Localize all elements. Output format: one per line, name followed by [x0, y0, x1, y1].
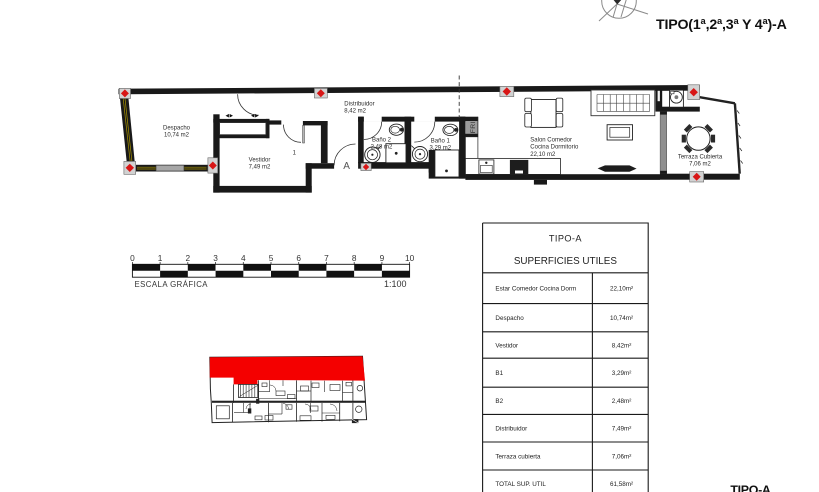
svg-text:Terraza cubierta: Terraza cubierta: [495, 453, 541, 460]
svg-text:TIPO-A: TIPO-A: [730, 483, 771, 492]
svg-text:Vestidor: Vestidor: [249, 157, 271, 163]
svg-text:0: 0: [130, 253, 135, 263]
svg-text:Cocina Dormitorio: Cocina Dormitorio: [530, 145, 579, 151]
svg-text:TIPO(1ª,2ª,3ª Y 4ª)-A: TIPO(1ª,2ª,3ª Y 4ª)-A: [656, 17, 787, 33]
svg-text:B2: B2: [495, 398, 503, 405]
svg-text:2: 2: [185, 253, 190, 263]
svg-text:SUPERFICIES UTILES: SUPERFICIES UTILES: [514, 256, 618, 267]
svg-text:ESCALA GRÁFICA: ESCALA GRÁFICA: [135, 280, 209, 289]
svg-text:7,06m²: 7,06m²: [612, 453, 632, 460]
svg-text:Distribuidor: Distribuidor: [495, 426, 527, 433]
svg-text:Despacho: Despacho: [163, 126, 191, 132]
svg-text:4: 4: [241, 253, 246, 263]
svg-text:Salon Comedor: Salon Comedor: [530, 138, 572, 144]
svg-text:7: 7: [324, 253, 329, 263]
svg-text:5: 5: [269, 253, 274, 263]
svg-text:22,10m²: 22,10m²: [610, 286, 633, 293]
svg-text:Baño 1: Baño 1: [431, 139, 451, 145]
svg-text:Terraza Cubierta: Terraza Cubierta: [678, 154, 723, 160]
svg-text:TOTAL SUP. UTIL: TOTAL SUP. UTIL: [495, 481, 546, 488]
svg-text:8,42m²: 8,42m²: [612, 342, 632, 349]
svg-text:2,48 m2: 2,48 m2: [371, 144, 393, 150]
svg-text:7,49 m2: 7,49 m2: [249, 164, 271, 170]
svg-text:3: 3: [213, 253, 218, 263]
svg-text:8,42 m2: 8,42 m2: [344, 109, 366, 115]
svg-text:3,29m²: 3,29m²: [612, 370, 632, 377]
svg-text:22,10 m2: 22,10 m2: [530, 152, 556, 158]
svg-text:3,29 m2: 3,29 m2: [429, 145, 451, 151]
svg-text:8: 8: [352, 253, 357, 263]
svg-text:Distribuidor: Distribuidor: [344, 102, 374, 108]
svg-text:Baño 2: Baño 2: [372, 137, 392, 143]
svg-text:2,48m²: 2,48m²: [612, 398, 632, 405]
svg-text:1: 1: [158, 253, 163, 263]
svg-text:10: 10: [405, 253, 415, 263]
svg-text:A: A: [343, 161, 350, 172]
svg-text:Despacho: Despacho: [495, 315, 524, 322]
svg-text:61,58m²: 61,58m²: [610, 481, 633, 488]
svg-text:FRI: FRI: [470, 121, 477, 133]
svg-text:Vestidor: Vestidor: [495, 342, 518, 349]
svg-text:9: 9: [380, 253, 385, 263]
svg-text:6: 6: [296, 253, 301, 263]
svg-text:TIPO-A: TIPO-A: [549, 234, 582, 244]
svg-text:7,06 m2: 7,06 m2: [689, 161, 711, 167]
svg-text:7,49m²: 7,49m²: [612, 426, 632, 433]
svg-text:10,74m²: 10,74m²: [610, 315, 633, 322]
svg-text:Estar Comedor Cocina Dorm: Estar Comedor Cocina Dorm: [495, 286, 576, 293]
svg-text:B1: B1: [495, 370, 503, 377]
svg-text:1:100: 1:100: [384, 279, 407, 289]
svg-text:10,74 m2: 10,74 m2: [164, 133, 190, 139]
